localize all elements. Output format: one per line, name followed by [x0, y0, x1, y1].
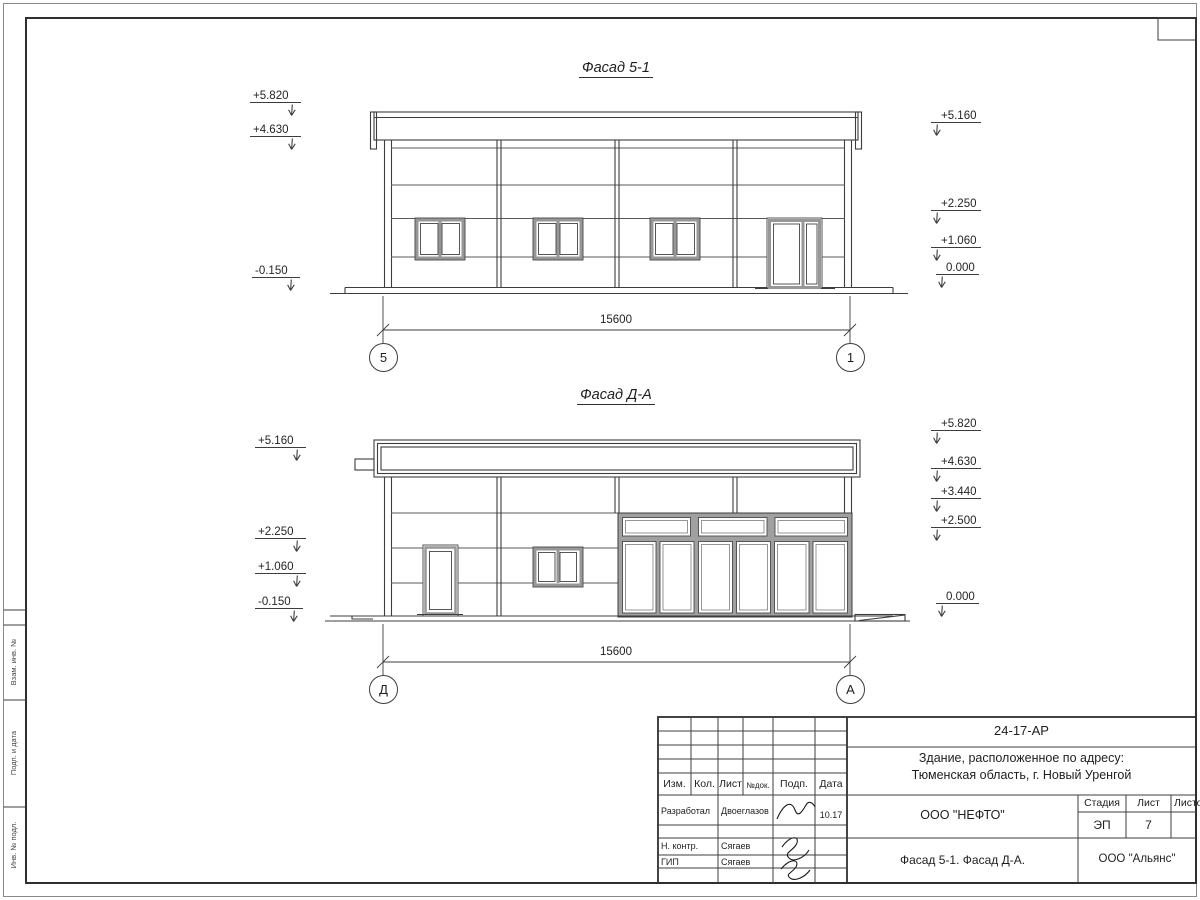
elevation-mark: +5.160: [255, 435, 306, 448]
down-arrow-icon: [931, 432, 943, 445]
role-gip: ГИП: [661, 857, 679, 868]
down-arrow-icon: [291, 540, 303, 553]
down-arrow-icon: [286, 138, 298, 151]
col-header-izm: Изм.: [658, 778, 691, 791]
side-strip-label: Инв. № подл.: [9, 803, 19, 887]
col-header-ndoc: №док.: [743, 781, 773, 791]
elevation-mark: +5.820: [931, 418, 981, 431]
name-ncontrol: Сягаев: [721, 841, 750, 852]
down-arrow-icon: [936, 276, 948, 289]
elevation-mark: +2.250: [931, 198, 981, 211]
role-ncontrol: Н. контр.: [661, 841, 698, 852]
elevation-mark: +1.060: [931, 235, 981, 248]
down-arrow-icon: [931, 212, 943, 225]
facade-top-window-3: [650, 218, 700, 260]
date-developed: 10.17: [815, 810, 847, 821]
elevation-mark: +3.440: [931, 486, 981, 499]
facade-top-parapet: [371, 112, 862, 149]
down-arrow-icon: [288, 610, 300, 623]
facade-bottom-ground: [325, 615, 910, 622]
side-strip-label: Подп. и дата: [9, 711, 19, 795]
elevation-mark: +2.500: [931, 515, 981, 528]
sheets-label: Листов: [1171, 797, 1200, 810]
down-arrow-icon: [931, 470, 943, 483]
elevation-mark: +2.250: [255, 526, 306, 539]
side-strip-label: Взам. инв. №: [9, 620, 19, 704]
elevation-value: +5.820: [250, 90, 301, 103]
col-header-data: Дата: [815, 778, 847, 791]
down-arrow-icon: [931, 500, 943, 513]
elevation-mark: +5.820: [250, 90, 301, 103]
axis-bubble: Д: [369, 675, 398, 704]
elevation-mark: 0.000: [936, 591, 979, 604]
col-header-kol: Кол.: [691, 778, 718, 791]
down-arrow-icon: [286, 104, 298, 117]
down-arrow-icon: [291, 449, 303, 462]
col-header-podp: Подп.: [773, 778, 815, 791]
elevation-mark: +5.160: [931, 110, 981, 123]
elevation-mark: 0.000: [936, 262, 979, 275]
axis-bubble: 1: [836, 343, 865, 372]
stage-value: ЭП: [1078, 818, 1126, 833]
axis-bubble: 5: [369, 343, 398, 372]
down-arrow-icon: [931, 124, 943, 137]
elevation-mark: +4.630: [931, 456, 981, 469]
company-name: ООО "НЕФТО": [847, 808, 1078, 824]
role-developed: Разработал: [661, 806, 710, 817]
down-arrow-icon: [936, 605, 948, 618]
name-developed: Двоеглазов: [721, 806, 769, 817]
elevation-mark: +4.630: [250, 124, 301, 137]
facade-top-window-1: [415, 218, 465, 260]
down-arrow-icon: [291, 575, 303, 588]
drawing-title: Фасад 5-1. Фасад Д-А.: [847, 853, 1078, 868]
facade-top-door: [767, 218, 822, 288]
facade-bottom-window: [533, 547, 583, 587]
firm-name: ООО "Альянс": [1078, 852, 1196, 866]
elevation-mark: +1.060: [255, 561, 306, 574]
facade-bottom-storefront: [618, 513, 852, 617]
object-address-line2: Тюменская область, г. Новый Уренгой: [847, 768, 1196, 784]
facade-top-title: Фасад 5-1: [556, 59, 676, 77]
sheet-value: 7: [1126, 818, 1171, 833]
down-arrow-icon: [285, 279, 297, 292]
dimension-value: 15600: [566, 313, 666, 327]
down-arrow-icon: [931, 249, 943, 262]
down-arrow-icon: [931, 529, 943, 542]
object-address-line1: Здание, расположенное по адресу:: [847, 751, 1196, 767]
stage-label: Стадия: [1078, 797, 1126, 810]
sheet-label: Лист: [1126, 797, 1171, 810]
drawing-sheet: Фасад 5-1 Фасад Д-А +5.820 +4.630 -0.150…: [0, 0, 1200, 900]
doc-code: 24-17-АР: [847, 723, 1196, 739]
dimension-value: 15600: [566, 645, 666, 659]
top-right-cell: [1158, 18, 1196, 40]
axis-bubble: А: [836, 675, 865, 704]
elevation-mark: -0.150: [252, 265, 300, 278]
elevation-mark: -0.150: [255, 596, 303, 609]
facade-bottom-signband: [355, 440, 860, 477]
facade-bottom-door: [423, 545, 458, 616]
facade-bottom-title: Фасад Д-А: [556, 386, 676, 404]
col-header-list: Лист: [718, 778, 743, 791]
facade-top-window-2: [533, 218, 583, 260]
name-gip: Сягаев: [721, 857, 750, 868]
